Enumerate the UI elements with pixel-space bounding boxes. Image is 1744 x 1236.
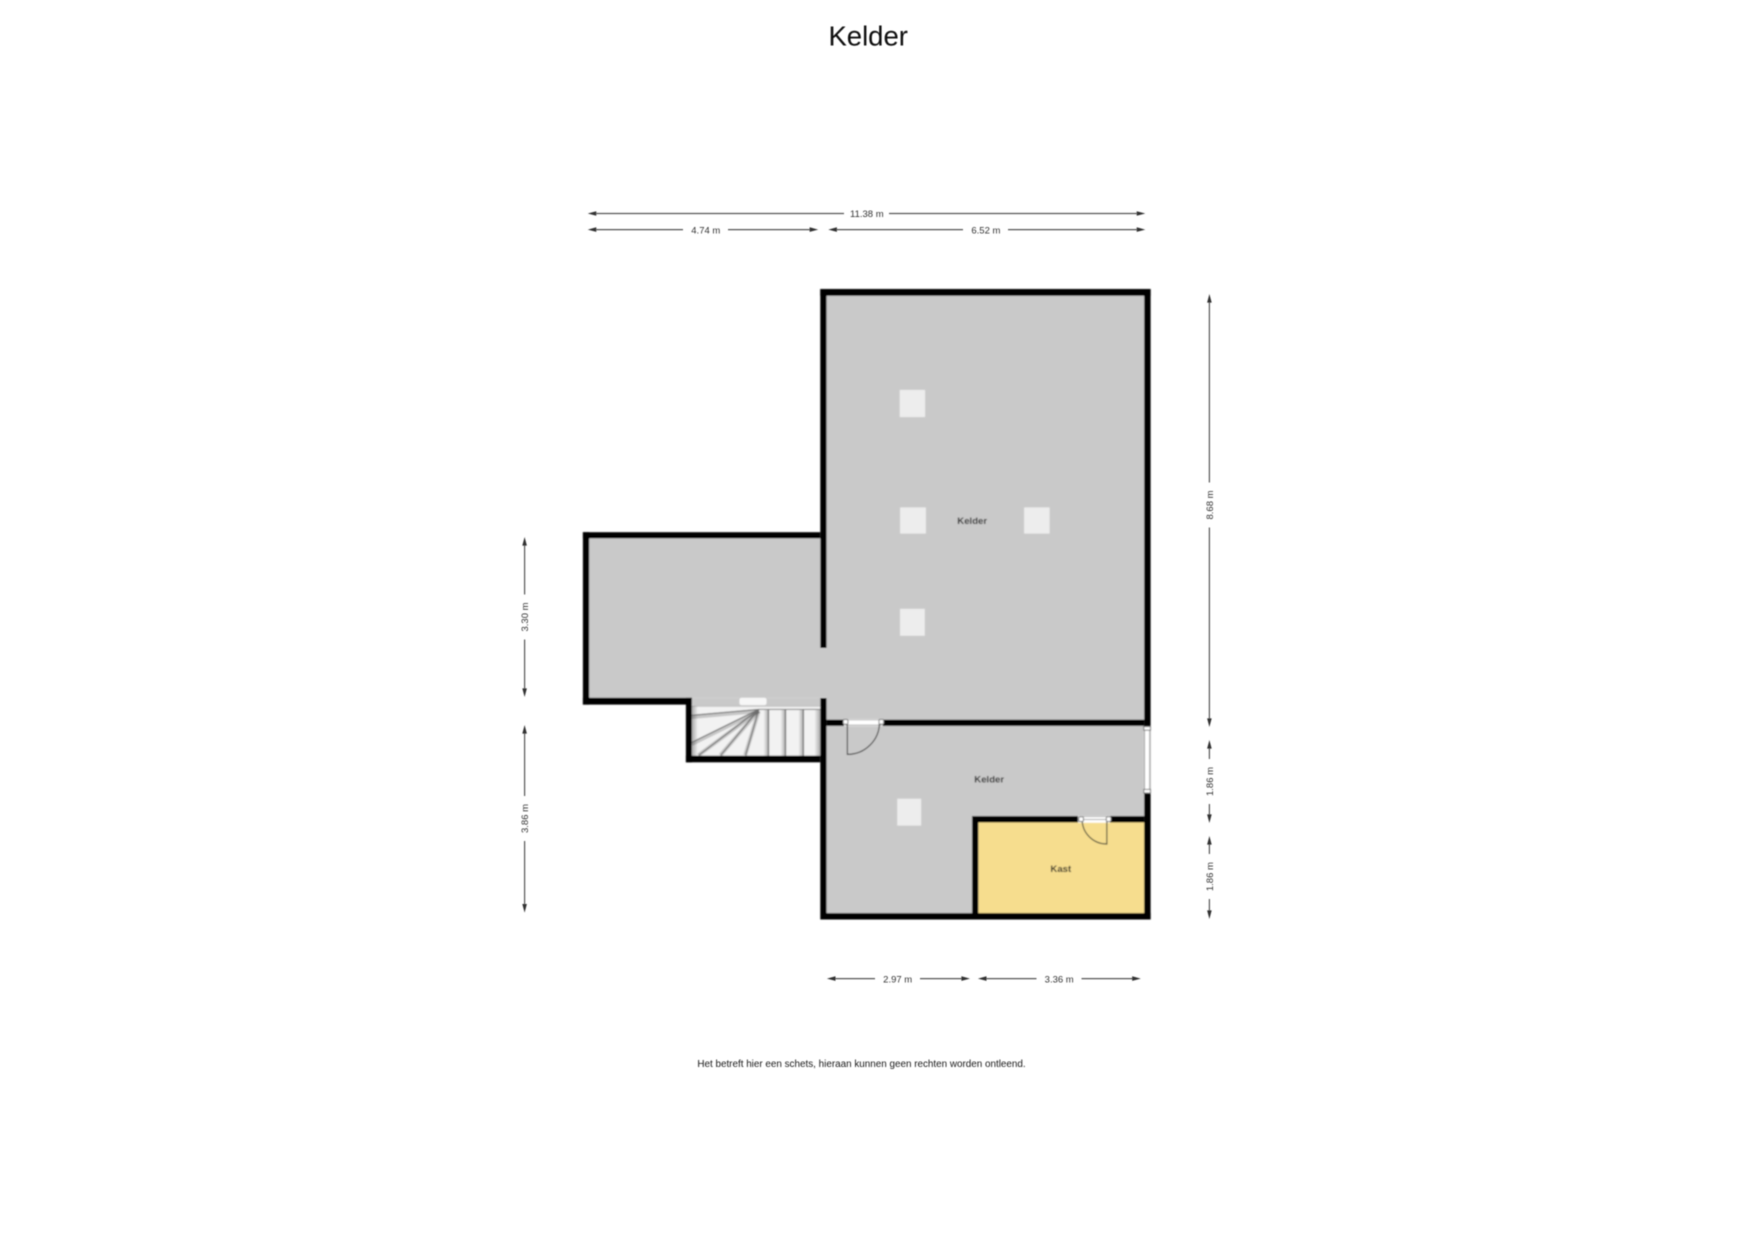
svg-text:Kelder: Kelder [828, 20, 908, 51]
svg-text:Kelder: Kelder [974, 775, 1004, 786]
svg-text:2.97 m: 2.97 m [883, 974, 912, 985]
svg-text:4.74 m: 4.74 m [691, 225, 720, 236]
svg-text:1.86 m: 1.86 m [1205, 767, 1216, 796]
svg-text:8.68 m: 8.68 m [1205, 490, 1216, 519]
svg-text:3.86 m: 3.86 m [520, 804, 531, 833]
svg-text:3.30 m: 3.30 m [520, 602, 531, 631]
svg-text:Kast: Kast [1050, 864, 1072, 875]
svg-text:Kelder: Kelder [957, 516, 987, 527]
svg-text:11.38 m: 11.38 m [850, 209, 884, 220]
svg-text:6.52 m: 6.52 m [971, 225, 1000, 236]
svg-text:3.36 m: 3.36 m [1045, 974, 1074, 985]
svg-text:Het betreft hier een schets, h: Het betreft hier een schets, hieraan kun… [697, 1059, 1025, 1070]
svg-text:1.86 m: 1.86 m [1205, 862, 1216, 891]
